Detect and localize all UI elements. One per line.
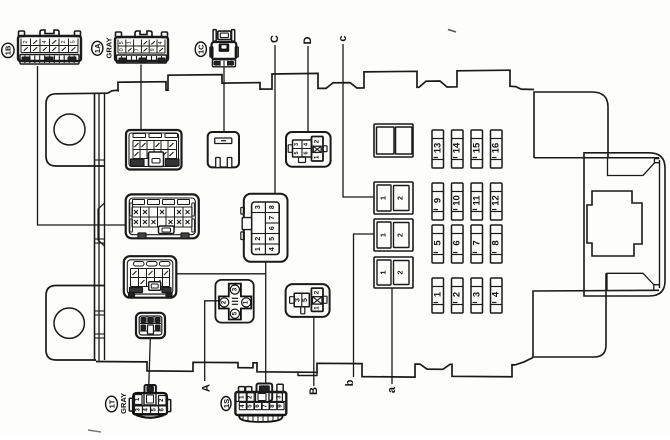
svg-text:5: 5 xyxy=(432,240,443,246)
svg-text:2: 2 xyxy=(255,237,262,241)
svg-text:6: 6 xyxy=(304,151,310,154)
svg-text:A: A xyxy=(201,384,213,392)
svg-text:GRAY: GRAY xyxy=(119,393,128,414)
svg-text:1: 1 xyxy=(314,155,321,159)
svg-text:5: 5 xyxy=(119,41,125,44)
svg-text:3: 3 xyxy=(255,205,262,209)
svg-text:7: 7 xyxy=(269,216,276,220)
svg-text:4: 4 xyxy=(240,404,246,408)
svg-text:1: 1 xyxy=(240,395,246,399)
svg-text:3: 3 xyxy=(136,407,142,411)
svg-text:6: 6 xyxy=(160,407,166,411)
svg-text:4: 4 xyxy=(158,41,164,44)
svg-text:0: 0 xyxy=(119,48,125,51)
svg-text:13: 13 xyxy=(432,143,443,154)
svg-text:D: D xyxy=(302,36,314,44)
svg-text:1: 1 xyxy=(135,397,141,401)
svg-text:1A: 1A xyxy=(93,43,102,53)
svg-text:6: 6 xyxy=(452,240,463,245)
svg-text:7: 7 xyxy=(135,48,141,51)
svg-text:8: 8 xyxy=(270,404,276,408)
svg-text:3: 3 xyxy=(231,287,238,291)
svg-text:5: 5 xyxy=(70,40,76,43)
svg-text:1: 1 xyxy=(314,306,321,310)
svg-text:4: 4 xyxy=(269,247,276,251)
svg-text:16: 16 xyxy=(491,143,502,154)
svg-text:2: 2 xyxy=(248,395,254,399)
svg-text:1B: 1B xyxy=(4,45,13,55)
svg-text:2: 2 xyxy=(221,300,228,304)
svg-text:5: 5 xyxy=(294,151,300,154)
svg-text:9: 9 xyxy=(432,198,443,203)
svg-text:7: 7 xyxy=(263,404,269,408)
svg-text:1: 1 xyxy=(432,291,443,297)
svg-text:9: 9 xyxy=(278,404,284,408)
svg-text:2: 2 xyxy=(452,292,463,297)
svg-text:1: 1 xyxy=(381,196,388,200)
svg-text:2: 2 xyxy=(314,290,321,294)
svg-text:5: 5 xyxy=(152,407,158,411)
svg-text:2: 2 xyxy=(398,233,405,237)
svg-text:6: 6 xyxy=(269,226,276,230)
svg-text:1: 1 xyxy=(243,300,250,304)
svg-text:2: 2 xyxy=(398,196,405,200)
svg-text:8: 8 xyxy=(269,205,276,209)
svg-text:1S: 1S xyxy=(222,399,231,408)
svg-text:2: 2 xyxy=(314,139,321,143)
svg-text:4: 4 xyxy=(144,407,150,411)
svg-text:15: 15 xyxy=(471,142,482,153)
svg-text:5: 5 xyxy=(302,298,309,302)
svg-text:4: 4 xyxy=(304,142,310,146)
svg-text:c: c xyxy=(337,35,349,41)
svg-text:14: 14 xyxy=(452,142,463,153)
svg-text:1: 1 xyxy=(381,233,388,237)
svg-text:4: 4 xyxy=(491,291,502,297)
svg-text:5: 5 xyxy=(247,404,253,408)
svg-text:2: 2 xyxy=(159,398,165,402)
svg-text:7: 7 xyxy=(471,240,482,245)
svg-text:2: 2 xyxy=(398,270,405,274)
svg-text:a: a xyxy=(386,386,398,393)
svg-text:9: 9 xyxy=(150,48,156,51)
svg-text:b: b xyxy=(344,379,356,386)
svg-text:C: C xyxy=(269,35,281,43)
svg-text:5: 5 xyxy=(269,237,276,241)
svg-text:B: B xyxy=(308,387,320,395)
svg-text:1: 1 xyxy=(381,270,388,274)
svg-text:2: 2 xyxy=(61,40,67,43)
svg-text:3: 3 xyxy=(471,292,482,297)
svg-text:2: 2 xyxy=(23,40,29,43)
svg-text:5: 5 xyxy=(231,312,238,316)
svg-text:8: 8 xyxy=(491,240,502,245)
svg-text:3: 3 xyxy=(295,298,302,302)
svg-text:4: 4 xyxy=(42,40,48,43)
svg-text:GRAY: GRAY xyxy=(104,38,113,59)
svg-text:6: 6 xyxy=(255,404,261,408)
svg-text:3: 3 xyxy=(294,143,300,146)
svg-text:11: 11 xyxy=(471,195,482,206)
svg-text:1: 1 xyxy=(127,41,133,44)
svg-text:12: 12 xyxy=(491,195,502,206)
svg-text:1T: 1T xyxy=(107,399,116,408)
svg-text:10: 10 xyxy=(452,195,463,206)
svg-text:1C: 1C xyxy=(197,44,206,54)
svg-text:1: 1 xyxy=(255,247,262,251)
